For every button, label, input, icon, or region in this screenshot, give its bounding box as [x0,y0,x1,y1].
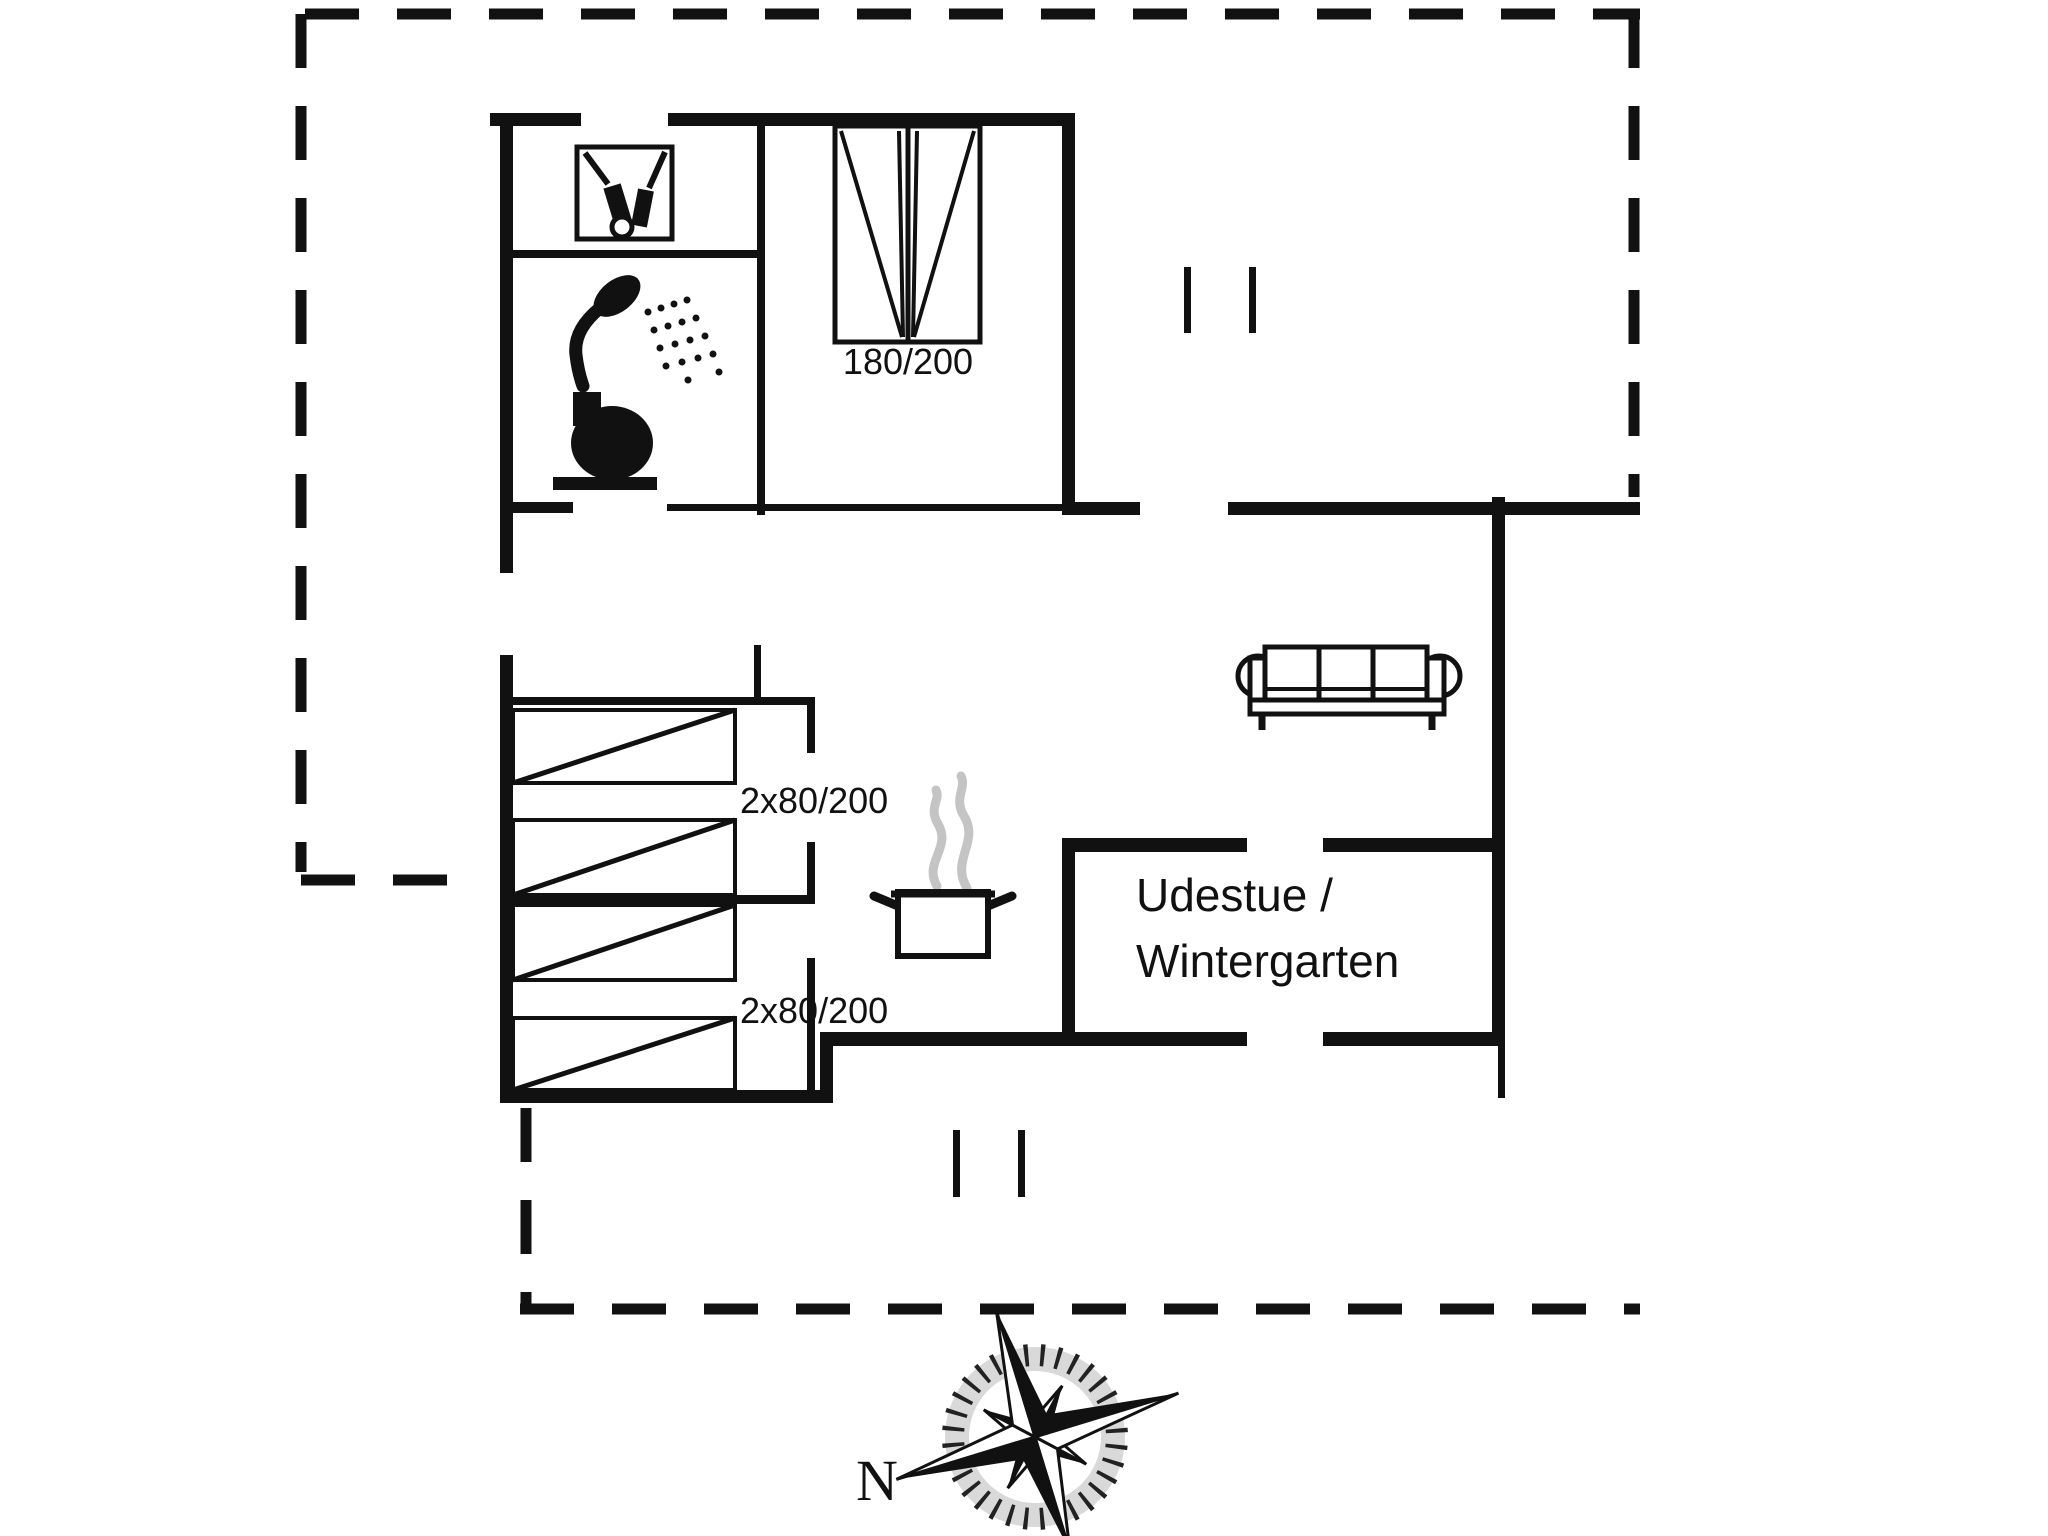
floor-plan: 180/200 2x80/200 2x80/200 [0,0,2048,1536]
shower-spray [645,297,723,384]
wall-bath-bedroom-divider [757,126,765,515]
door-jamb-tick [754,645,761,700]
opening-tick-s-2 [1018,1130,1025,1197]
sunroom-label-line1: Udestue / [1136,869,1333,921]
sunroom-label-line2: Wintergarten [1136,935,1399,987]
wall-south-a [820,1032,1247,1046]
shower-icon [576,267,723,386]
double-bed-size-label: 180/200 [843,341,973,382]
wall-bedroom-right [1062,113,1075,515]
wall-east-stub [1498,1046,1505,1098]
wall-mid-a [1062,502,1140,515]
wall-bunkroom-top [503,697,815,705]
floor-plan-page: 180/200 2x80/200 2x80/200 [0,0,2048,1536]
wall-east [1492,497,1505,1046]
opening-tick-ne-1 [1184,267,1191,333]
opening-tick-s-1 [953,1130,960,1197]
wall-hall-top [667,504,1062,511]
bunk-top-size-label: 2x80/200 [740,780,888,821]
steam-left [933,790,942,886]
wall-mid-b [1228,502,1640,515]
wall-bath-inner [500,250,757,258]
steam-right [960,776,969,888]
wall-bath-bottom [500,502,573,513]
compass-north-label: N [856,1448,898,1513]
wall-sunroom-top-a [1062,838,1247,852]
cooking-pot-icon [874,776,1012,956]
wall-corridor-seg2 [807,842,815,902]
wall-sunroom-top-b [1323,838,1505,852]
bunk-bottom-size-label: 2x80/200 [740,990,888,1031]
wall-south-b [1323,1032,1505,1046]
sofa-icon [1238,647,1460,730]
double-bed-icon [835,126,980,342]
toilet-icon [553,392,657,490]
opening-tick-ne-2 [1249,267,1256,333]
wall-sunroom-left [1062,838,1075,1046]
washing-machine-icon [577,147,672,239]
wall-corridor-seg1 [807,700,815,753]
